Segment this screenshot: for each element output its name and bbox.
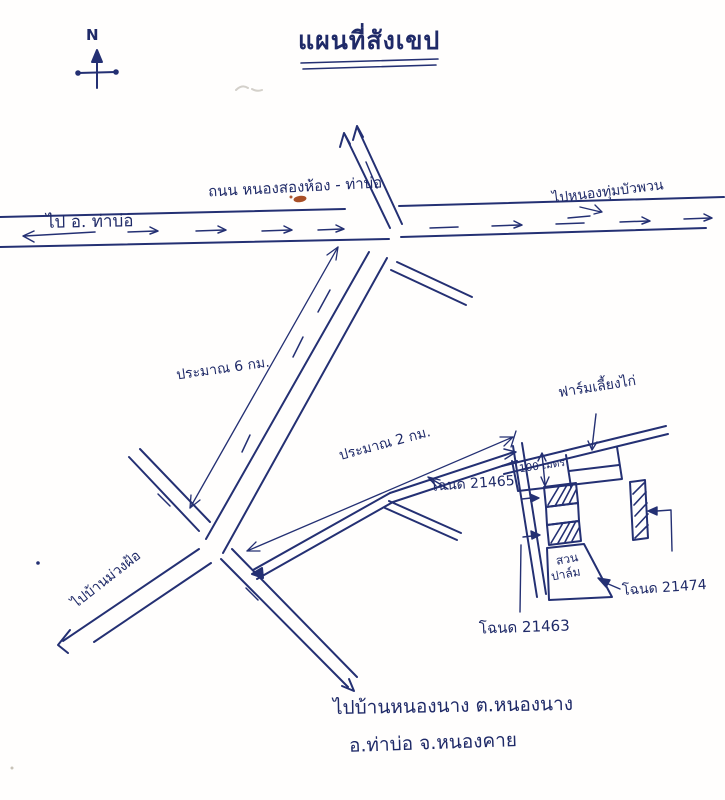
to-thabo-label: ไป อ. ท่าบ่อ — [46, 213, 134, 232]
right-label-arrow — [568, 205, 602, 218]
diagonal-road — [206, 252, 387, 553]
map-drawing — [0, 0, 725, 800]
southeast-road-stub — [391, 262, 472, 305]
destination-label-line1: ไปบ้านหนองนาง ต.หนองนาง — [333, 695, 573, 719]
ink-dot — [36, 561, 40, 565]
hatched-plot-east — [630, 480, 648, 540]
deed-21474-leader — [598, 507, 672, 589]
title-underline — [301, 59, 438, 69]
farm-access-road — [252, 449, 517, 579]
cross-road — [129, 449, 357, 691]
map-title: แผนที่สังเขป — [298, 28, 440, 54]
deed-21463-label: โฉนด 21463 — [479, 618, 570, 637]
chicken-farm-arrow — [588, 414, 597, 450]
deed-21463-leader — [520, 545, 521, 612]
sketch-map-page: แผนที่สังเขป N ถนน หนองสองห้อง - ท่าบ่อ … — [0, 0, 725, 800]
north-label: N — [86, 28, 99, 44]
paper-speck — [11, 767, 14, 770]
pencil-smudge — [236, 86, 262, 90]
north-arrow-icon — [76, 50, 118, 88]
hatched-plot-lower — [547, 521, 581, 545]
